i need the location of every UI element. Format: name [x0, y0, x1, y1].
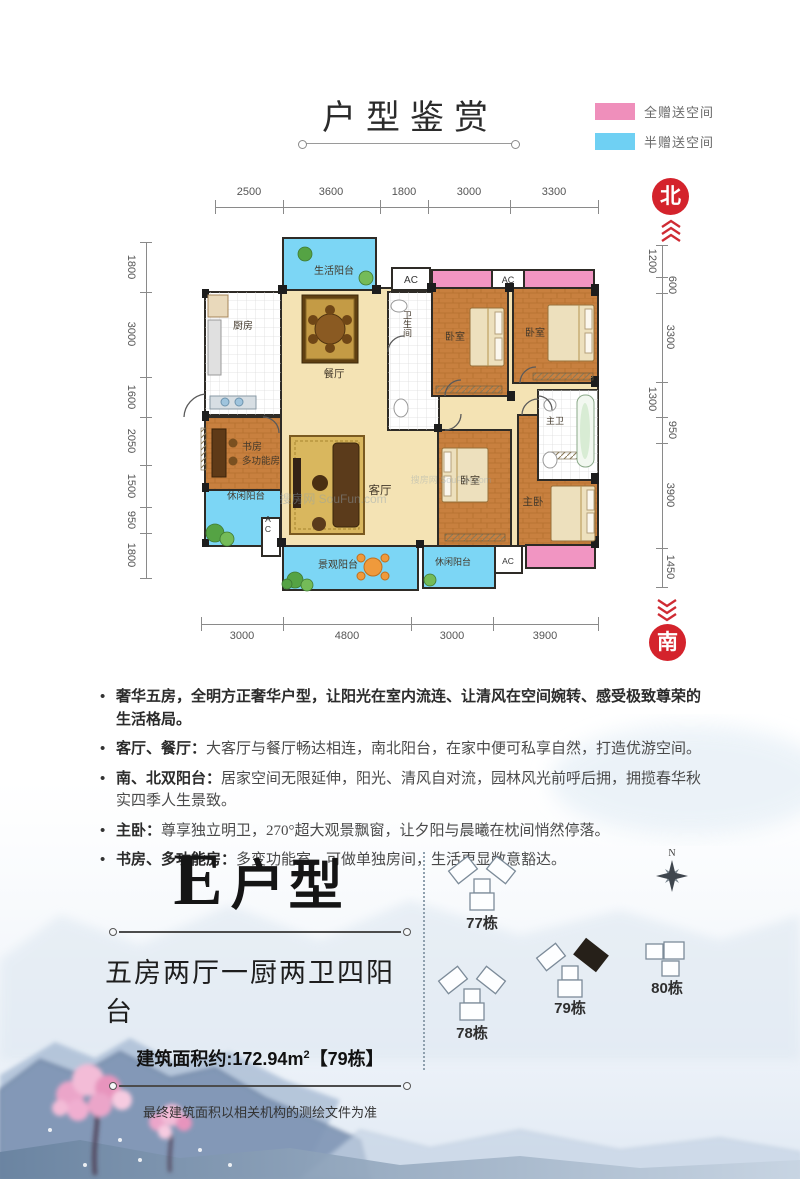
label-study: 书房 — [242, 440, 262, 453]
floorplan-svg: 生活阳台 厨房 餐厅 卫生间 AC AC 卧室 卧室 主卫 书房 多功能房 休闲… — [183, 228, 645, 600]
dim-label: 1800 — [125, 255, 137, 279]
tick — [598, 200, 599, 214]
dining-set — [302, 295, 358, 363]
label-master-bath: 主卫 — [546, 415, 564, 426]
building-78-label: 78栋 — [456, 1024, 488, 1042]
bed-master — [551, 486, 595, 541]
south-badge: 南 — [649, 624, 686, 661]
feature-item: 客厅、餐厅：大客厅与餐厅畅达相连，南北阳台，在家中便可私享自然，打造优游空间。 — [100, 738, 712, 761]
dim-label: 3000 — [440, 630, 464, 642]
tick — [140, 533, 152, 534]
tick — [380, 200, 381, 214]
south-chevrons-icon — [655, 596, 679, 622]
tick — [140, 292, 152, 293]
title-line-end-right — [511, 140, 520, 149]
label-bedroom-a: 卧室 — [445, 330, 465, 343]
dim-label: 1200 — [646, 249, 658, 273]
dim-label: 1500 — [125, 474, 137, 498]
petal-speckles — [48, 1128, 232, 1167]
divider-line — [119, 1085, 401, 1087]
feature-strong: 南、北双阳台： — [116, 770, 221, 787]
tick — [140, 417, 152, 418]
bed-bedroom-b — [548, 305, 594, 361]
area-text: 建筑面积约:172.94m — [136, 1049, 303, 1069]
legend-row-full: 全赠送空间 — [595, 102, 714, 121]
label-dining: 餐厅 — [324, 367, 345, 380]
dim-label: 3900 — [533, 630, 557, 642]
dim-label: 950 — [125, 511, 137, 529]
label-ac: AC — [263, 514, 273, 534]
north-chevrons-icon — [659, 219, 683, 245]
dim-label: 3300 — [542, 186, 566, 198]
tick — [656, 245, 668, 246]
dim-label: 3600 — [319, 186, 343, 198]
page-title: 户型鉴赏 — [280, 90, 540, 139]
gift-strip-pink — [432, 270, 492, 288]
tick — [656, 382, 668, 383]
unit-suffix: 户型 — [231, 856, 347, 916]
tick — [215, 200, 216, 214]
tick — [411, 617, 412, 631]
tick — [283, 200, 284, 214]
tick — [510, 200, 511, 214]
label-kitchen: 厨房 — [233, 319, 253, 332]
feature-strong: 奢华五房，全明方正奢华户型，让阳光在室内流连、让清风在空间婉转、感受极致尊荣的生… — [116, 688, 701, 728]
label-multifunction: 多功能房 — [242, 455, 280, 467]
dim-label: 3300 — [664, 325, 676, 349]
dim-line — [662, 245, 663, 587]
building-79-footprint — [537, 939, 609, 997]
dim-label: 3000 — [230, 630, 254, 642]
compass-rose-icon: N — [656, 848, 688, 892]
legend-row-half: 半赠送空间 — [595, 132, 714, 151]
legend-swatch-half-gift — [595, 133, 635, 150]
dim-label: 1450 — [664, 555, 676, 579]
foreground-band — [0, 1140, 800, 1179]
label-leisure-balcony-a: 休闲阳台 — [227, 490, 265, 502]
label-ac: AC — [404, 275, 418, 286]
building-80-label: 80栋 — [651, 979, 683, 997]
unit-disclaimer: 最终建筑面积以相关机构的测绘文件为准 — [143, 1102, 377, 1121]
dim-label: 4800 — [335, 630, 359, 642]
watermark: 搜房网 SouFun.com — [411, 474, 492, 485]
label-ac: AC — [502, 275, 515, 285]
north-badge: 北 — [652, 178, 689, 215]
tick — [283, 617, 284, 631]
site-plan-svg: N 77栋 78栋 79栋 80栋 — [420, 838, 770, 1078]
compass-n-label: N — [668, 848, 675, 859]
dim-label: 3000 — [125, 322, 137, 346]
tick — [656, 443, 668, 444]
bed-bedroom-a — [470, 308, 504, 366]
dim-label: 600 — [666, 276, 678, 294]
label-life-balcony: 生活阳台 — [314, 264, 354, 277]
feature-strong: 客厅、餐厅： — [116, 740, 206, 757]
dim-label: 3900 — [664, 483, 676, 507]
label-bathroom: 卫生间 — [402, 311, 412, 339]
tick — [140, 377, 152, 378]
tick — [493, 617, 494, 631]
dim-label: 2500 — [237, 186, 261, 198]
label-leisure-balcony-b: 休闲阳台 — [435, 556, 471, 567]
title-line-end-left — [298, 140, 307, 149]
flyer-page: 户型鉴赏 全赠送空间 半赠送空间 2500 3600 1800 3000 330… — [0, 0, 800, 1179]
living-room-set — [290, 436, 364, 534]
label-view-balcony: 景观阳台 — [318, 558, 358, 571]
unit-layout: 五房两厅一厨两卫四阳台 — [105, 951, 415, 1029]
dim-label: 1600 — [125, 385, 137, 409]
tick — [140, 578, 152, 579]
legend-label: 半赠送空间 — [644, 132, 714, 151]
label-ac: AC — [502, 556, 514, 566]
divider-line — [119, 931, 401, 933]
unit-letter: E — [173, 839, 222, 921]
watermark: 搜房网 SouFun.com — [279, 491, 386, 506]
feature-item: 奢华五房，全明方正奢华户型，让阳光在室内流连、让清风在空间婉转、感受极致尊荣的生… — [100, 686, 712, 731]
feature-strong: 主卧： — [116, 822, 161, 839]
dim-label: 1300 — [646, 387, 658, 411]
dim-label: 1800 — [392, 186, 416, 198]
building-79-highlighted-unit — [574, 939, 608, 972]
tick — [140, 242, 152, 243]
area-suffix: 【79栋】 — [310, 1049, 384, 1069]
tick — [598, 617, 599, 631]
unit-name: E户型 — [173, 843, 346, 917]
tick — [656, 587, 668, 588]
title-underline — [302, 143, 514, 144]
unit-area: 建筑面积约:172.94m2【79栋】 — [136, 1045, 383, 1071]
dim-label: 3000 — [457, 186, 481, 198]
dim-label: 950 — [666, 421, 678, 439]
tick — [201, 617, 202, 631]
legend-swatch-full-gift — [595, 103, 635, 120]
feature-item: 南、北双阳台：居家空间无限延伸，阳光、清风自对流，园林风光前呼后拥，拥揽春华秋实… — [100, 768, 712, 813]
tick — [428, 200, 429, 214]
tick — [656, 417, 668, 418]
tick — [140, 507, 152, 508]
building-77-label: 77栋 — [466, 914, 498, 932]
dim-line — [201, 624, 598, 625]
unit-panel: E户型 五房两厅一厨两卫四阳台 建筑面积约:172.94m2【79栋】 最终建筑… — [105, 843, 415, 1121]
dim-label: 2050 — [125, 429, 137, 453]
building-78-footprint — [439, 966, 506, 1020]
gift-strip-pink — [526, 545, 595, 568]
dim-label: 1800 — [125, 543, 137, 567]
label-bedroom-b: 卧室 — [525, 326, 545, 339]
right-hills — [300, 1130, 800, 1179]
feature-text: 尊享独立明卫，270°超大观景飘窗，让夕阳与晨曦在枕间悄然停落。 — [161, 823, 610, 839]
legend-label: 全赠送空间 — [644, 102, 714, 121]
label-master-bedroom: 主卧 — [523, 495, 544, 508]
tick — [656, 548, 668, 549]
feature-text: 大客厅与餐厅畅达相连，南北阳台，在家中便可私享自然，打造优游空间。 — [206, 741, 701, 757]
building-77-footprint — [449, 856, 516, 910]
dim-line — [215, 207, 598, 208]
tick — [140, 465, 152, 466]
gift-strip-pink — [524, 270, 594, 288]
building-80-footprint — [646, 942, 684, 976]
legend: 全赠送空间 半赠送空间 — [595, 102, 714, 162]
building-79-label: 79栋 — [554, 999, 586, 1017]
